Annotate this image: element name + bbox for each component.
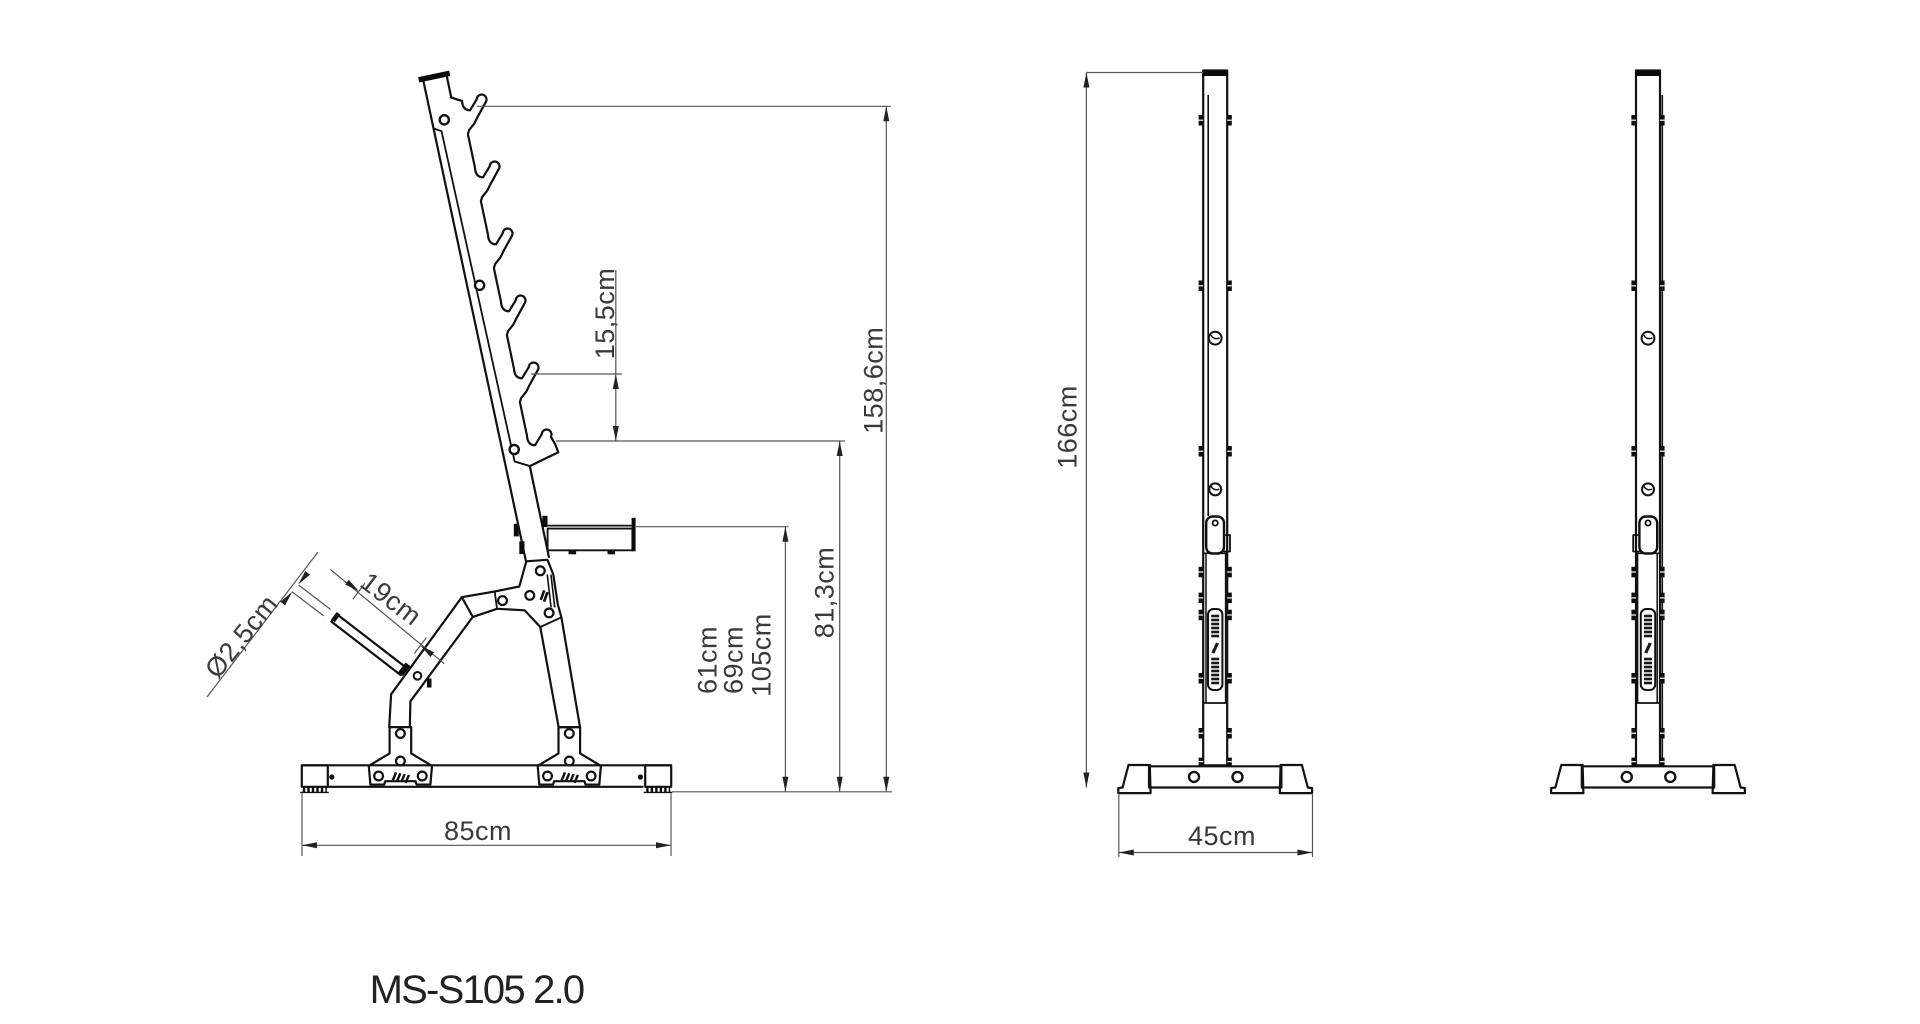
svg-text:69cm: 69cm: [719, 626, 749, 694]
svg-text:45cm: 45cm: [1188, 821, 1256, 851]
svg-text:15,5cm: 15,5cm: [590, 268, 620, 360]
svg-text:105cm: 105cm: [747, 613, 777, 697]
svg-text:MS-S105 2.0: MS-S105 2.0: [370, 968, 584, 1012]
svg-text:81,3cm: 81,3cm: [810, 547, 840, 639]
svg-text:85cm: 85cm: [444, 816, 512, 846]
svg-text:166cm: 166cm: [1053, 385, 1083, 469]
svg-text:158,6cm: 158,6cm: [858, 327, 888, 434]
